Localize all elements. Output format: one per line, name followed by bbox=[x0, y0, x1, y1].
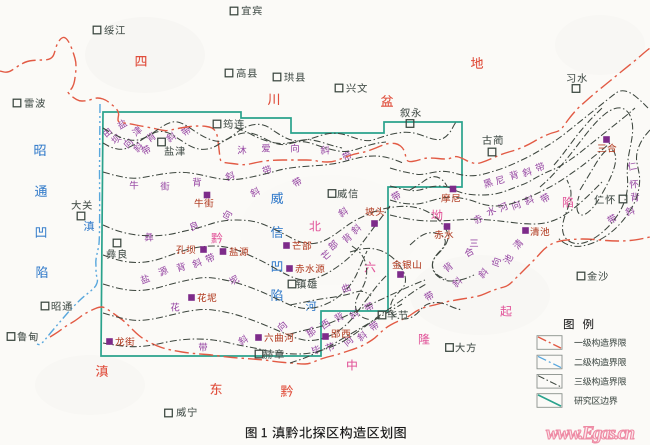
svg-text:www.Egas.cn: www.Egas.cn bbox=[546, 423, 635, 444]
